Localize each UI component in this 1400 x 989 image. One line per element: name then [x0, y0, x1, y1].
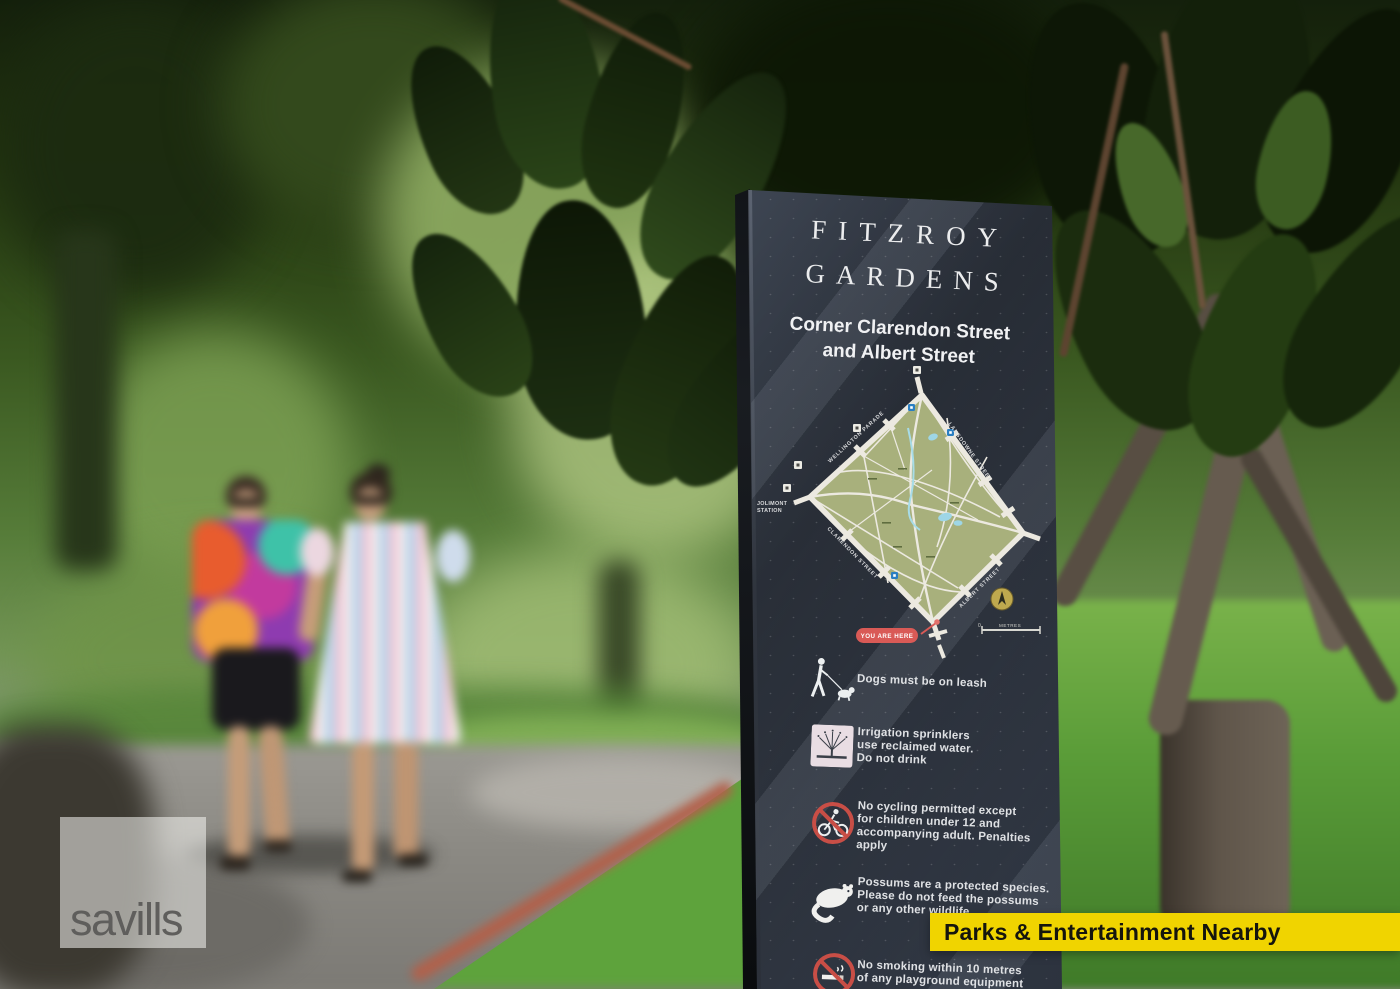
no-cycling-icon: [810, 800, 856, 846]
no-smoking-icon: [811, 951, 857, 989]
trunk-base: [1160, 700, 1290, 930]
park-photo: FITZROY GARDENS Corner Clarendon Street …: [0, 0, 1400, 989]
person2-sleeve: [300, 528, 334, 576]
rule-text: No smoking within 10 metres of any playg…: [857, 959, 1024, 989]
person1-sandal: [220, 856, 250, 870]
caption-banner-label: Parks & Entertainment Nearby: [944, 919, 1281, 946]
sign-title-line2: GARDENS: [757, 256, 1059, 301]
savills-logo-text: savills: [70, 894, 182, 946]
rule-text: Irrigation sprinklers use reclaimed wate…: [856, 726, 974, 769]
tree-trunk-blur: [55, 230, 117, 570]
sign-header: FITZROY GARDENS Corner Clarendon Street …: [753, 212, 1049, 372]
person1-leg: [258, 725, 290, 848]
person1-leg: [228, 726, 250, 858]
person1-sandal: [264, 840, 292, 852]
person1-sunglasses: [230, 498, 262, 507]
sprinkler-icon: [810, 724, 854, 768]
person2-leg: [352, 742, 374, 872]
person1-shirt: [192, 520, 314, 662]
person1-shorts: [212, 648, 300, 730]
savills-logo: savills: [60, 817, 206, 948]
foliage-right: [1030, 0, 1400, 560]
person2-sunglasses: [354, 496, 386, 505]
person2-leg: [394, 742, 418, 860]
dog-walker-icon: [804, 655, 860, 703]
caption-banner: Parks & Entertainment Nearby: [930, 913, 1400, 951]
rule-text: No cycling permitted except for children…: [856, 800, 1066, 860]
person2-flipflop: [398, 854, 428, 866]
possum-icon: [804, 880, 858, 926]
foreground-leaves: [400, 0, 780, 600]
person2-flipflop: [342, 870, 372, 882]
